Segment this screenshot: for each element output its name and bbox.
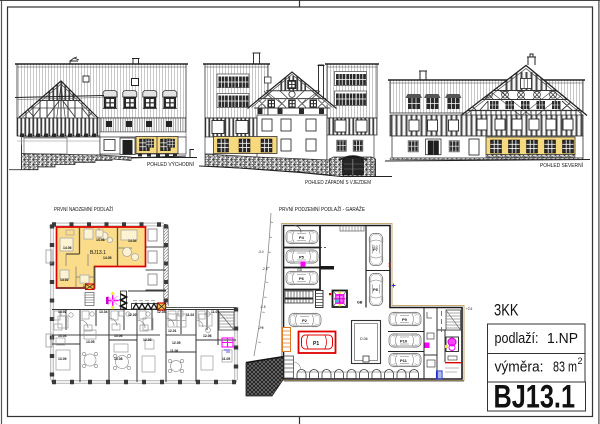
svg-text:13.02: 13.02 (58, 310, 67, 314)
svg-text:POHLED SEVERNÍ: POHLED SEVERNÍ (540, 162, 583, 169)
svg-text:GB: GB (357, 301, 363, 305)
svg-text:2: 2 (578, 356, 583, 366)
svg-text:P1: P1 (313, 341, 319, 347)
svg-text:12.05: 12.05 (172, 341, 181, 345)
svg-text:13.05: 13.05 (86, 340, 95, 344)
svg-text:-2.5: -2.5 (260, 305, 266, 309)
svg-text:P2: P2 (302, 318, 308, 323)
svg-text:14.05: 14.05 (103, 256, 112, 260)
svg-text:P11: P11 (400, 358, 408, 363)
svg-text:POHLED ZÁPADNÍ S VJEZDEM: POHLED ZÁPADNÍ S VJEZDEM (305, 179, 371, 186)
svg-text:12.01: 12.01 (168, 329, 177, 333)
svg-text:GB: GB (297, 268, 303, 272)
svg-text:podlaží:: podlaží: (495, 330, 539, 347)
svg-text:13.06: 13.06 (114, 334, 123, 338)
svg-text:14.04: 14.04 (128, 239, 137, 243)
svg-text:14.02: 14.02 (60, 278, 69, 282)
svg-text:1.NP: 1.NP (547, 330, 578, 347)
svg-text:-2.5: -2.5 (258, 326, 264, 330)
svg-text:PRVNÍ PODZEMNÍ PODLAŽÍ - GARÁŽ: PRVNÍ PODZEMNÍ PODLAŽÍ - GARÁŽE (279, 205, 365, 213)
svg-text:P8: P8 (373, 287, 379, 292)
svg-text:11.03: 11.03 (211, 310, 219, 314)
svg-text:12.04: 12.04 (157, 310, 166, 314)
svg-text:11.06: 11.06 (170, 349, 178, 353)
svg-text:D.06: D.06 (360, 337, 368, 341)
svg-text:14.08: 14.08 (96, 238, 105, 242)
svg-text:PRVNÍ NADZEMNÍ PODLAŽÍ: PRVNÍ NADZEMNÍ PODLAŽÍ (54, 205, 113, 213)
svg-text:13.03: 13.03 (58, 334, 67, 338)
svg-text:11.02: 11.02 (186, 313, 194, 317)
svg-text:+2.5: +2.5 (466, 307, 473, 311)
svg-text:P4: P4 (299, 235, 305, 240)
svg-text:13.08: 13.08 (114, 357, 123, 361)
svg-text:P6: P6 (299, 276, 305, 281)
svg-text:12.03: 12.03 (143, 338, 152, 342)
svg-text:3KK: 3KK (494, 301, 519, 320)
svg-text:-2.5: -2.5 (262, 267, 268, 271)
svg-text:83 m: 83 m (553, 359, 577, 376)
svg-text:-3.0: -3.0 (258, 250, 264, 254)
svg-text:11.05: 11.05 (222, 357, 230, 361)
svg-text:P5: P5 (299, 255, 305, 260)
svg-text:13.04: 13.04 (99, 310, 108, 314)
svg-text:12.02: 12.02 (128, 313, 137, 317)
svg-text:P9: P9 (402, 317, 408, 322)
svg-text:12.06: 12.06 (203, 334, 212, 338)
svg-text:P10: P10 (400, 339, 408, 344)
svg-text:14.06: 14.06 (63, 246, 72, 250)
svg-text:výměra:: výměra: (495, 359, 544, 376)
svg-text:-3.0: -3.0 (372, 245, 378, 249)
svg-text:BJ13.1: BJ13.1 (494, 379, 576, 415)
svg-text:13.09: 13.09 (58, 357, 67, 361)
svg-text:POHLED VÝCHODNÍ: POHLED VÝCHODNÍ (147, 161, 194, 168)
